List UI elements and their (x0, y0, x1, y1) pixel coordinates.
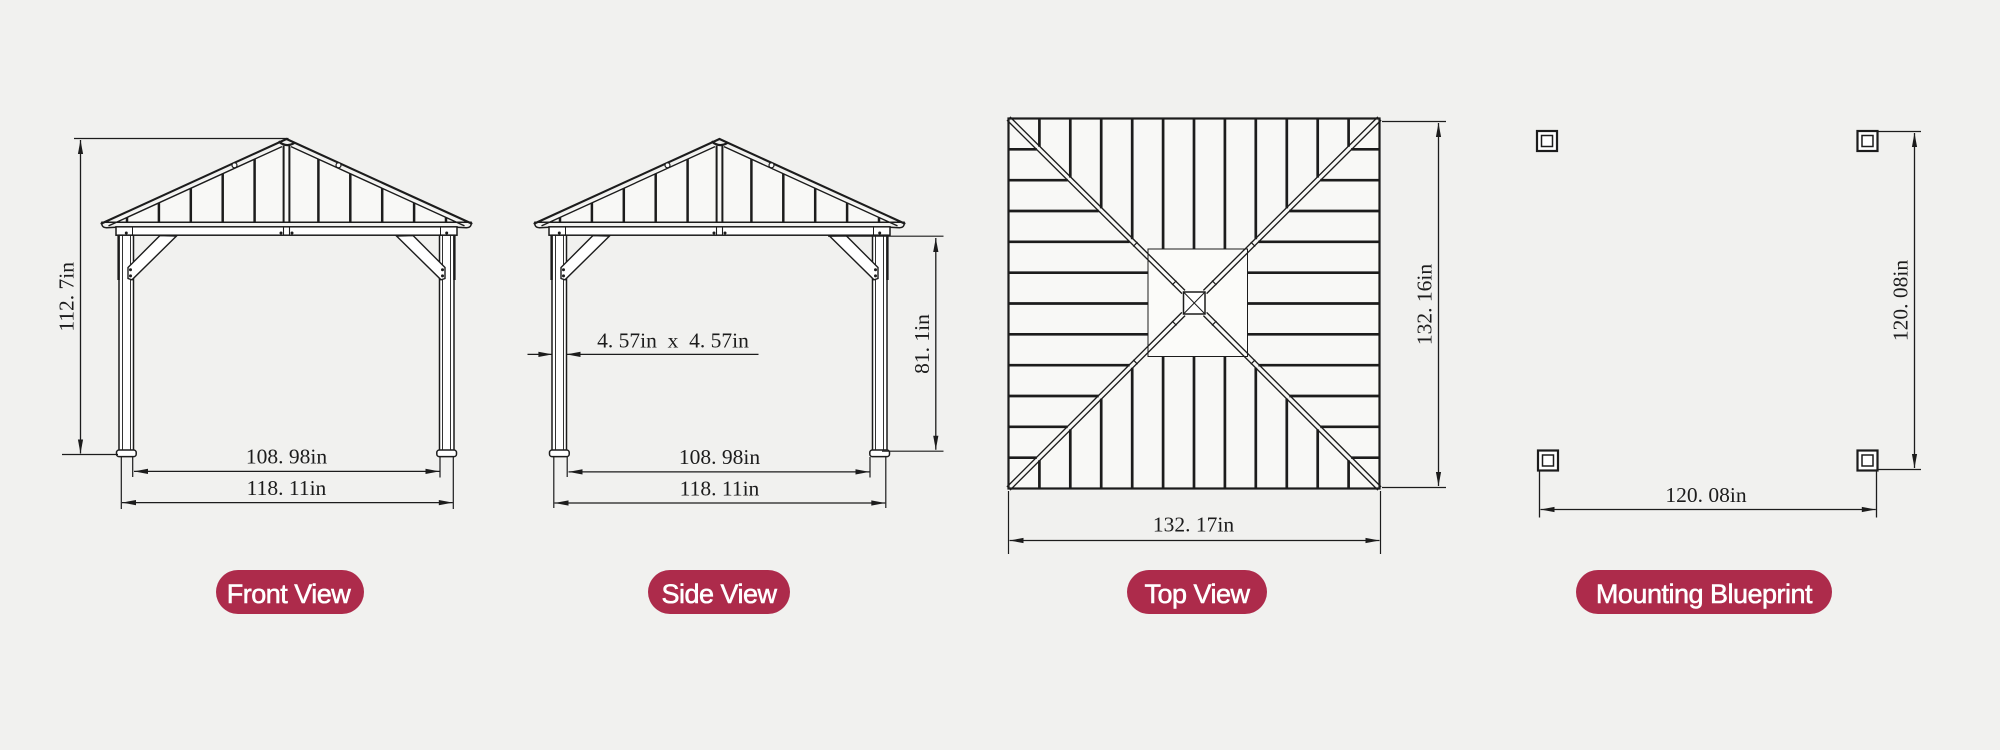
svg-text:81. 1in: 81. 1in (910, 314, 934, 374)
svg-text:132. 16in: 132. 16in (1413, 264, 1437, 345)
svg-text:Front View: Front View (227, 579, 352, 609)
svg-text:Mounting Blueprint: Mounting Blueprint (1596, 579, 1813, 609)
svg-text:108. 98in: 108. 98in (246, 445, 327, 469)
svg-text:120. 08in: 120. 08in (1889, 260, 1913, 341)
svg-text:118. 11in: 118. 11in (680, 477, 760, 501)
svg-text:108. 98in: 108. 98in (679, 445, 760, 469)
svg-text:112. 7in: 112. 7in (55, 262, 79, 332)
svg-text:120. 08in: 120. 08in (1665, 483, 1746, 507)
svg-text:Side View: Side View (661, 579, 777, 609)
svg-text:132. 17in: 132. 17in (1153, 513, 1234, 537)
svg-text:Top View: Top View (1144, 579, 1250, 609)
svg-text:4. 57in x 4. 57in: 4. 57in x 4. 57in (597, 329, 749, 353)
svg-text:118. 11in: 118. 11in (247, 476, 327, 500)
